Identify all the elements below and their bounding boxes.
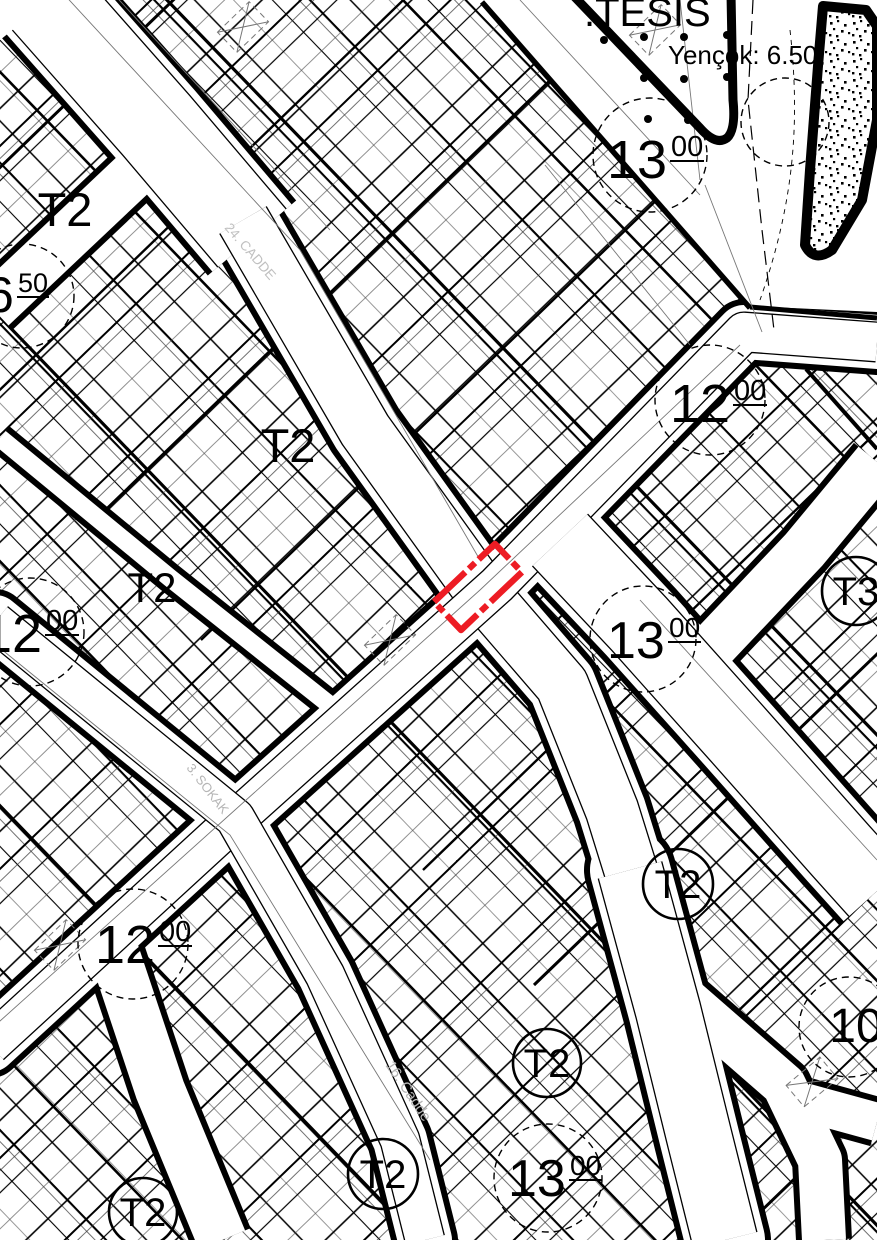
svg-text:00: 00	[671, 131, 703, 163]
svg-text:T2: T2	[120, 1191, 167, 1235]
svg-text:T2: T2	[524, 1042, 571, 1086]
svg-text:00: 00	[734, 375, 766, 407]
svg-text:T2: T2	[38, 183, 93, 236]
svg-text:T2: T2	[127, 564, 176, 611]
svg-text:T2: T2	[360, 1153, 407, 1197]
svg-text:00: 00	[159, 916, 191, 948]
svg-text:00: 00	[669, 612, 700, 643]
svg-text:12: 12	[670, 374, 730, 434]
svg-text:10: 10	[829, 1000, 877, 1053]
svg-text:6: 6	[0, 267, 14, 323]
svg-text:.TESİS: .TESİS	[584, 0, 711, 35]
svg-text:13: 13	[607, 612, 665, 670]
svg-text:00: 00	[570, 1150, 601, 1181]
svg-text:T2: T2	[655, 863, 702, 907]
svg-text:13: 13	[607, 130, 667, 190]
svg-text:12: 12	[95, 915, 155, 975]
svg-text:13: 13	[508, 1150, 566, 1208]
svg-text:Yençok: 6.50: Yençok: 6.50	[668, 40, 817, 70]
svg-text:12: 12	[0, 604, 42, 664]
svg-text:50: 50	[18, 268, 48, 298]
svg-text:T2: T2	[261, 419, 316, 472]
svg-text:00: 00	[46, 605, 78, 637]
svg-text:T3: T3	[833, 570, 877, 614]
